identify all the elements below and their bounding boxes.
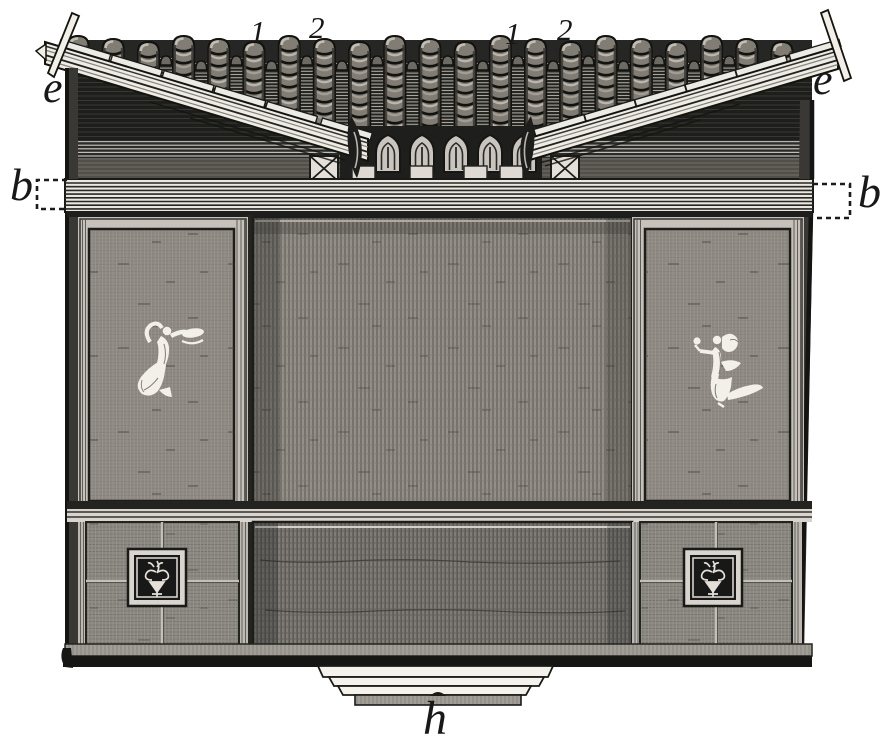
svg-text:b: b (10, 159, 33, 210)
svg-text:h: h (423, 692, 447, 738)
svg-text:1: 1 (250, 14, 266, 49)
svg-text:e: e (813, 55, 833, 104)
svg-text:e: e (43, 63, 63, 112)
svg-text:2: 2 (557, 12, 573, 47)
svg-text:1: 1 (505, 16, 521, 51)
svg-text:2: 2 (309, 10, 325, 45)
svg-text:b: b (858, 166, 881, 217)
